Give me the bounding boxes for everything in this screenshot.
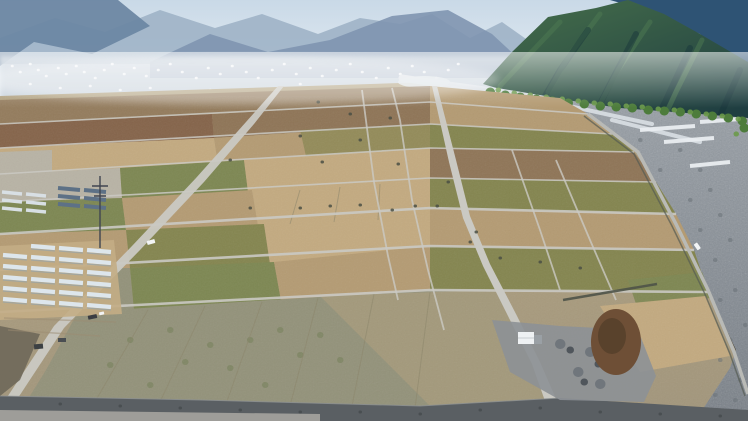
pit-inner: [598, 318, 626, 354]
atmosphere: [0, 52, 748, 108]
shed-annex: [534, 335, 542, 344]
town-glow: [0, 56, 500, 104]
excavator: [34, 344, 43, 350]
photo-stage: [0, 0, 748, 421]
machinery: [58, 338, 66, 342]
aerial-photo: [0, 0, 748, 421]
